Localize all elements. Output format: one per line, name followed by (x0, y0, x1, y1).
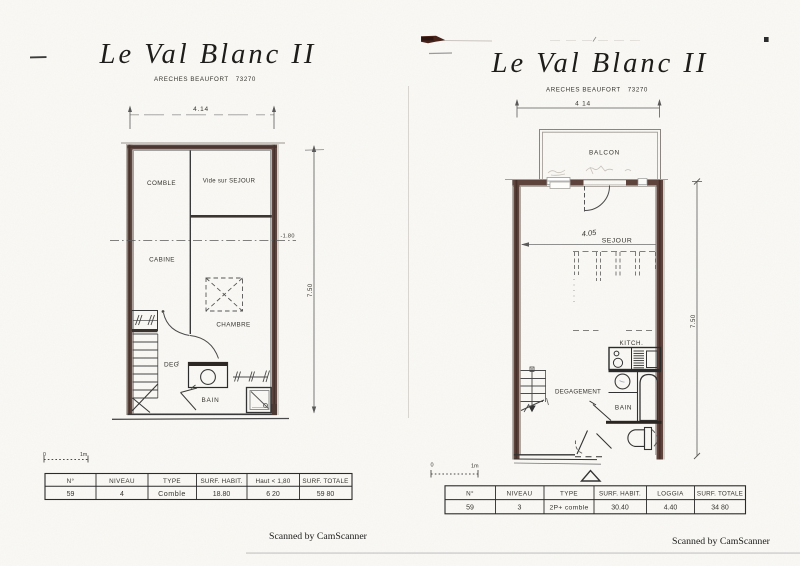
svg-text:4.14: 4.14 (193, 106, 209, 113)
svg-text:34 80: 34 80 (711, 505, 729, 512)
svg-text:DEGAGEMENT: DEGAGEMENT (555, 389, 601, 396)
svg-text:2P+ comble: 2P+ comble (549, 505, 588, 512)
svg-text:LOGGIA: LOGGIA (657, 491, 684, 498)
svg-text:7.50: 7.50 (691, 314, 697, 328)
svg-text:ARECHES BEAUFORT 73270: ARECHES BEAUFORT 73270 (546, 87, 648, 94)
svg-text:N°: N° (67, 477, 75, 485)
svg-text:Scanned by CamScanner: Scanned by CamScanner (672, 536, 771, 547)
svg-text:4.40: 4.40 (664, 505, 678, 512)
svg-text:0: 0 (431, 463, 434, 469)
svg-text:6 20: 6 20 (266, 491, 280, 498)
svg-text:4.05: 4.05 (581, 228, 597, 239)
svg-text:TYPE: TYPE (560, 491, 578, 498)
svg-text:NIVEAU: NIVEAU (109, 478, 135, 485)
svg-text:Scanned by CamScanner: Scanned by CamScanner (269, 531, 368, 542)
svg-text:SURF. HABIT.: SURF. HABIT. (599, 491, 641, 498)
svg-text:3: 3 (518, 505, 522, 512)
svg-text:KITCH.: KITCH. (620, 340, 644, 347)
svg-text:-1.80: -1.80 (281, 234, 295, 240)
svg-text:COMBLE: COMBLE (147, 180, 176, 187)
svg-text:SURF. TOTALE: SURF. TOTALE (697, 491, 743, 498)
svg-text:Comble: Comble (158, 489, 186, 498)
svg-text:4 14: 4 14 (575, 101, 591, 108)
svg-text:SEJOUR: SEJOUR (602, 238, 633, 245)
svg-text:Haut < 1,80: Haut < 1,80 (256, 478, 291, 485)
svg-text:TYPE: TYPE (163, 478, 181, 485)
svg-text:N°: N° (466, 490, 474, 498)
svg-text:BALCON: BALCON (589, 150, 620, 157)
svg-text:BAIN: BAIN (201, 397, 219, 404)
svg-text:30.40: 30.40 (611, 505, 629, 512)
svg-text:59: 59 (466, 505, 474, 512)
svg-text:59 80: 59 80 (317, 491, 335, 498)
svg-text:NIVEAU: NIVEAU (507, 491, 533, 498)
svg-text:BAIN: BAIN (615, 405, 632, 412)
svg-text:SURF. HABIT.: SURF. HABIT. (201, 478, 243, 485)
svg-text:1m: 1m (471, 464, 479, 470)
svg-text:7.50: 7.50 (308, 283, 314, 297)
svg-text:SURF. TOTALE: SURF. TOTALE (302, 478, 348, 485)
svg-text:18.80: 18.80 (213, 491, 231, 498)
svg-text:59: 59 (67, 491, 75, 498)
svg-text:Vide sur SEJOUR: Vide sur SEJOUR (203, 179, 256, 185)
svg-text:0: 0 (43, 452, 46, 458)
svg-text:4: 4 (120, 491, 124, 498)
svg-text:CHAMBRE: CHAMBRE (216, 322, 250, 329)
svg-text:ARECHES BEAUFORT 73270: ARECHES BEAUFORT 73270 (154, 76, 256, 83)
svg-text:Le Val Blanc II: Le Val Blanc II (491, 48, 709, 79)
svg-text:Le Val Blanc II: Le Val Blanc II (99, 39, 317, 70)
svg-text:CABINE: CABINE (149, 257, 175, 264)
svg-text:1m: 1m (80, 452, 87, 458)
